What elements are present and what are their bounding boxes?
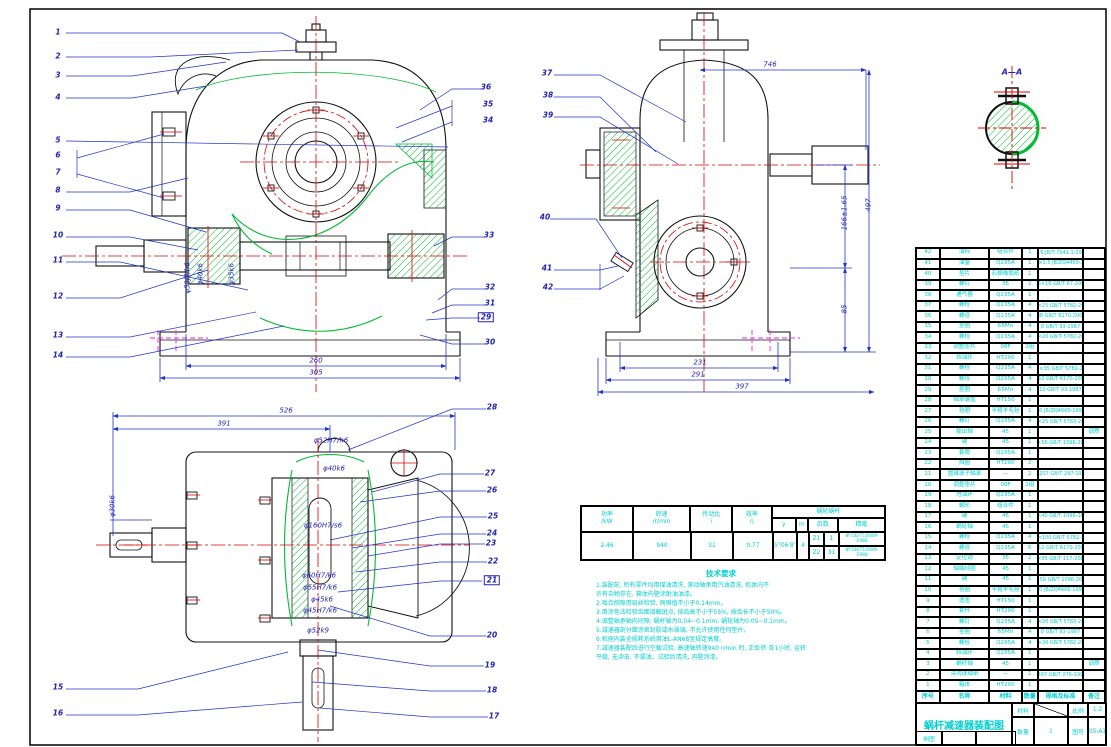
bom-cell: 1 bbox=[916, 680, 940, 691]
bom-cell bbox=[1083, 332, 1105, 343]
bom-cell bbox=[1038, 269, 1084, 280]
param-precision-1: 8f GB/T10089-1988 bbox=[839, 532, 885, 546]
bom-cell: Q235A bbox=[989, 311, 1022, 322]
part-callout-42: 42 bbox=[543, 283, 553, 291]
bom-cell: 1 bbox=[1022, 269, 1038, 280]
part-callout-40: 40 bbox=[540, 213, 550, 221]
bom-cell: 28 bbox=[916, 396, 940, 407]
bom-cell: 4 bbox=[1022, 628, 1038, 639]
bom-cell: 18 bbox=[916, 501, 940, 512]
bom-cell: 45 bbox=[989, 427, 1022, 438]
part-callout-10: 10 bbox=[53, 231, 63, 239]
bom-cell: 08F bbox=[989, 343, 1022, 354]
scale-label: 比例 bbox=[1068, 703, 1088, 717]
bom-cell: 11 bbox=[916, 575, 940, 586]
bom-row: 13定位销3528×35 GB/T 117-2000 bbox=[916, 554, 1105, 565]
bom-cell bbox=[1083, 301, 1105, 312]
bom-cell: 1 bbox=[1022, 649, 1038, 660]
bom-cell: 6 bbox=[1022, 543, 1038, 554]
bom-cell: 材料 bbox=[989, 691, 1022, 703]
bom-cell bbox=[1083, 491, 1105, 502]
bom-cell: 4 bbox=[1022, 385, 1038, 396]
bom-cell: 键 bbox=[940, 512, 989, 523]
bom-cell: 备注 bbox=[1083, 691, 1105, 703]
bom-row: 41油塞Q235A1M16×1.5 JB/ZQ4450-1997 bbox=[916, 259, 1105, 270]
bom-cell: 名称 bbox=[940, 691, 989, 703]
bom-cell: 1 bbox=[1022, 396, 1038, 407]
bom-row: 2深沟球轴承—16207 GB/T 276-1994 bbox=[916, 670, 1105, 681]
bom-row: 10毡圈半粗羊毛毡130 JB/ZQ4606-1997 bbox=[916, 586, 1105, 597]
bom-cell: 4 bbox=[1022, 617, 1038, 628]
bom-cell: HT150 bbox=[989, 596, 1022, 607]
bom-cell: 蜗轮 bbox=[940, 501, 989, 512]
bom-cell bbox=[1083, 617, 1105, 628]
bom-cell: 6 bbox=[916, 628, 940, 639]
part-callout-14: 14 bbox=[53, 351, 63, 359]
bom-row: 9透盖HT1501 bbox=[916, 596, 1105, 607]
param-z2-label: Z2 bbox=[809, 546, 824, 560]
bom-cell bbox=[1083, 417, 1105, 428]
draft-date-cell bbox=[976, 731, 1016, 746]
bom-cell: 垫圈 bbox=[940, 385, 989, 396]
bom-cell: 45 bbox=[989, 564, 1022, 575]
bom-cell: 40 JB/ZQ4606-1997 bbox=[1038, 406, 1084, 417]
part-callout-22: 22 bbox=[488, 557, 498, 565]
bom-cell: — bbox=[989, 469, 1022, 480]
bom-cell: 螺母 bbox=[940, 543, 989, 554]
part-callout-3: 3 bbox=[55, 71, 60, 79]
bom-cell: 45 bbox=[989, 659, 1022, 670]
bom-cell: M12 GB/T 6170-2000 bbox=[1038, 543, 1084, 554]
part-callout-9: 9 bbox=[55, 204, 60, 212]
part-callout-37: 37 bbox=[542, 69, 552, 77]
bom-cell: Q235A bbox=[989, 301, 1022, 312]
draft-label: 制图 bbox=[916, 731, 942, 746]
bom-cell bbox=[1038, 480, 1084, 491]
bom-cell bbox=[1083, 364, 1105, 375]
part-callout-38: 38 bbox=[543, 91, 553, 99]
bom-cell: 垫圈 bbox=[940, 628, 989, 639]
bom-cell: 螺钉 bbox=[940, 617, 989, 628]
bom-row: 1箱体HT2001 bbox=[916, 680, 1105, 691]
bom-cell: 22 bbox=[916, 459, 940, 470]
bom-row: 34螺栓Q235A4M8×20 GB/T 5782-2000 bbox=[916, 332, 1105, 343]
bom-table: 42油标组合件1M16 JB/T 7941.1-199541油塞Q235A1M1… bbox=[915, 247, 1106, 745]
note-line: 2.啮合侧隙用铅丝检验, 侧隙值不小于0.14mm。 bbox=[596, 599, 846, 608]
part-callout-27: 27 bbox=[485, 469, 495, 477]
bom-cell: 4 bbox=[1022, 301, 1038, 312]
note-line: 3.用涂色法检验齿面接触斑点, 按齿高不小于55%, 按齿长不小于50%。 bbox=[596, 608, 846, 617]
bom-cell: 螺栓 bbox=[940, 332, 989, 343]
front-view-centerlines bbox=[62, 16, 470, 392]
bom-row: 20调整垫片08F2组 bbox=[916, 480, 1105, 491]
bom-cell: 2 bbox=[1022, 459, 1038, 470]
bom-row: 23套筒Q235A1 bbox=[916, 448, 1105, 459]
bom-cell: 甩油环 bbox=[940, 491, 989, 502]
bom-row: 29垫圈65Mn410 GB/T 93-1987 bbox=[916, 385, 1105, 396]
bom-cell: 1 bbox=[1022, 522, 1038, 533]
bom-cell: 27 bbox=[916, 406, 940, 417]
bom-cell bbox=[1083, 459, 1105, 470]
bom-cell: 2 bbox=[1022, 280, 1038, 291]
bom-cell bbox=[1083, 543, 1105, 554]
bom-cell bbox=[1038, 501, 1084, 512]
bom-cell: 组合件 bbox=[989, 248, 1022, 259]
bom-cell bbox=[1083, 469, 1105, 480]
param-header-power: 功率/kW bbox=[581, 506, 633, 532]
bom-row: 7螺钉Q235A4M8×20 GB/T 5783-2000 bbox=[916, 617, 1105, 628]
bom-cell bbox=[1083, 343, 1105, 354]
bom-cell: Q235A bbox=[989, 375, 1022, 386]
part-callout-36: 36 bbox=[481, 83, 491, 91]
bom-cell: 透盖 bbox=[940, 596, 989, 607]
bom-cell bbox=[1083, 280, 1105, 291]
bom-cell: 1 bbox=[1022, 564, 1038, 575]
bom-cell: 2 bbox=[916, 670, 940, 681]
bom-cell bbox=[1083, 533, 1105, 544]
bom-row: 24键45112×56 GB/T 1096-2003 bbox=[916, 438, 1105, 449]
part-callout-32: 32 bbox=[485, 283, 495, 291]
bom-cell: 数量 bbox=[1022, 691, 1038, 703]
bom-cell: 6207 GB/T 276-1994 bbox=[1038, 670, 1084, 681]
bom-cell bbox=[1083, 269, 1105, 280]
bom-cell bbox=[1083, 406, 1105, 417]
bom-cell: 调整垫片 bbox=[940, 343, 989, 354]
param-module: 4 bbox=[797, 532, 809, 560]
bom-cell: 序号 bbox=[916, 691, 940, 703]
part-callout-30: 30 bbox=[485, 338, 495, 346]
bom-cell: 65Mn bbox=[989, 628, 1022, 639]
part-callout-39: 39 bbox=[543, 111, 553, 119]
bom-cell: Q235A bbox=[989, 417, 1022, 428]
bom-cell: 半粗羊毛毡 bbox=[989, 586, 1022, 597]
bom-cell: M16×1.5 JB/ZQ4450-1997 bbox=[1038, 259, 1084, 270]
bom-cell: 4 bbox=[916, 649, 940, 660]
bom-cell bbox=[1083, 385, 1105, 396]
part-callout-21: 21 bbox=[484, 575, 500, 585]
technical-notes: 技术要求 1.装配前, 所有零件均用煤油清洗, 滚动轴承用汽油清洗, 机体内不 … bbox=[596, 568, 846, 662]
bom-cell: 1 bbox=[1022, 259, 1038, 270]
bom-row: 40垫片石棉橡胶纸1 bbox=[916, 269, 1105, 280]
bom-cell: 调质 bbox=[1083, 427, 1105, 438]
leader-lines bbox=[66, 33, 686, 717]
bom-cell: 深沟球轴承 bbox=[940, 670, 989, 681]
bom-cell: 33 bbox=[916, 343, 940, 354]
bom-cell: 石棉橡胶纸 bbox=[989, 269, 1022, 280]
bom-row: 33调整垫片08F2组 bbox=[916, 343, 1105, 354]
bom-cell: 41 bbox=[916, 259, 940, 270]
part-callout-25: 25 bbox=[488, 512, 498, 520]
part-callout-35: 35 bbox=[483, 100, 493, 108]
param-eff: 0.77 bbox=[733, 532, 773, 560]
param-header-eff: 效率η bbox=[732, 506, 772, 532]
bom-cell: Q235A bbox=[989, 259, 1022, 270]
bom-cell: Q235A bbox=[989, 448, 1022, 459]
bom-cell bbox=[1083, 680, 1105, 691]
part-callout-28: 28 bbox=[487, 403, 497, 411]
bom-cell: 毡圈 bbox=[940, 586, 989, 597]
bom-cell: 1 bbox=[1022, 512, 1038, 523]
bom-cell: 蜗杆轴 bbox=[940, 659, 989, 670]
bom-row: 26螺钉Q235A4M8×25 GB/T 5783-2000 bbox=[916, 417, 1105, 428]
bom-cell: 螺钉 bbox=[940, 417, 989, 428]
bom-cell bbox=[1083, 564, 1105, 575]
bom-row: 17键45110×40 GB/T 1096-2003 bbox=[916, 512, 1105, 523]
bom-cell: — bbox=[989, 670, 1022, 681]
bom-cell: 35 bbox=[916, 322, 940, 333]
bom-cell: Q235A bbox=[989, 290, 1022, 301]
bom-row: 25输出轴451调质 bbox=[916, 427, 1105, 438]
note-line: 7.减速器装配后进行空载试验, 高速轴转速940 r/min 时, 正反转 各1… bbox=[596, 644, 846, 653]
bom-cell: 8 GB/T 93-1987 bbox=[1038, 628, 1084, 639]
note-line: 5.减速器剖分面涂密封胶或水玻璃, 不允许使用任何垫片。 bbox=[596, 626, 846, 635]
bom-row: 4挡油环Q235A1 bbox=[916, 649, 1105, 660]
bom-cell: 4 bbox=[1022, 417, 1038, 428]
bom-cell: 键 bbox=[940, 575, 989, 586]
bom-cell: 调整垫片 bbox=[940, 480, 989, 491]
bom-cell: 垫圈 bbox=[940, 322, 989, 333]
bom-cell: 8 GB/T 93-1987 bbox=[1038, 322, 1084, 333]
bom-cell bbox=[1038, 353, 1084, 364]
drawing-canvas: 1234567891011121314151636353433323129303… bbox=[0, 0, 1111, 747]
bom-cell bbox=[1038, 343, 1084, 354]
bom-cell: 半粗羊毛毡 bbox=[989, 406, 1022, 417]
bom-cell bbox=[1083, 322, 1105, 333]
bom-cell bbox=[1083, 448, 1105, 459]
bom-cell: 30 bbox=[916, 375, 940, 386]
bom-cell: 37 bbox=[916, 301, 940, 312]
bom-cell: 箱体 bbox=[940, 680, 989, 691]
note-line: 许有杂物存在, 箱体内壁涂耐油油漆。 bbox=[596, 590, 846, 599]
param-header-gamma: γ bbox=[772, 518, 796, 532]
bom-cell bbox=[1083, 259, 1105, 270]
bom-row: 21圆锥滚子轴承—230207 GB/T 297-1994 bbox=[916, 469, 1105, 480]
part-callout-6: 6 bbox=[55, 151, 60, 159]
bom-cell: 9 bbox=[916, 596, 940, 607]
bom-cell: 1 bbox=[1022, 353, 1038, 364]
bom-cell: 输出轴 bbox=[940, 427, 989, 438]
bom-row: 35垫圈65Mn48 GB/T 93-1987 bbox=[916, 322, 1105, 333]
bom-row: 14螺母Q235A6M12 GB/T 6170-2000 bbox=[916, 543, 1105, 554]
material-label: 材料 bbox=[1012, 703, 1034, 717]
note-line: 6.机座内装全损耗系统用油L-AN68至规定高度。 bbox=[596, 635, 846, 644]
bom-cell: 10 bbox=[916, 586, 940, 597]
bom-cell: 蜗轮轴 bbox=[940, 522, 989, 533]
part-callout-1: 1 bbox=[55, 28, 60, 36]
part-callout-26: 26 bbox=[487, 486, 497, 494]
part-callout-20: 20 bbox=[487, 631, 497, 639]
bom-cell: 45 bbox=[989, 512, 1022, 523]
bom-cell: 4 bbox=[1022, 375, 1038, 386]
param-z1: 1 bbox=[824, 532, 839, 546]
bom-cell: HT200 bbox=[989, 353, 1022, 364]
bom-cell: 4 bbox=[1022, 322, 1038, 333]
bom-cell: 10×40 GB/T 1096-2003 bbox=[1038, 512, 1084, 523]
bom-cell: 螺栓 bbox=[940, 638, 989, 649]
bom-cell: 1 bbox=[1022, 248, 1038, 259]
bom-cell: 8×50 GB/T 1096-2003 bbox=[1038, 575, 1084, 586]
part-callout-18: 18 bbox=[487, 686, 497, 694]
bom-cell bbox=[1083, 522, 1105, 533]
bom-cell: 08F bbox=[989, 480, 1022, 491]
bom-cell: 40 bbox=[916, 269, 940, 280]
bom-cell: 螺栓 bbox=[940, 364, 989, 375]
side-view-phantom bbox=[742, 330, 800, 352]
bom-cell: 39 bbox=[916, 280, 940, 291]
bom-cell: 1 bbox=[1022, 659, 1038, 670]
bom-cell: 35 bbox=[989, 554, 1022, 565]
bom-row: 28轴承端盖HT1501 bbox=[916, 396, 1105, 407]
bom-cell: 调质 bbox=[1083, 659, 1105, 670]
bom-cell: 2组 bbox=[1022, 343, 1038, 354]
detail-a-a bbox=[978, 66, 1046, 190]
bom-row: 42油标组合件1M16 JB/T 7941.1-1995 bbox=[916, 248, 1105, 259]
bom-cell: 8×35 GB/T 117-2000 bbox=[1038, 554, 1084, 565]
bom-row: 36螺母Q235A4M8 GB/T 6170-2000 bbox=[916, 311, 1105, 322]
bom-row: 30螺母Q235A4M10 GB/T 6170-2000 bbox=[916, 375, 1105, 386]
bom-cell: 34 bbox=[916, 332, 940, 343]
part-callout-8: 8 bbox=[55, 186, 60, 194]
param-header-teeth: 齿数 bbox=[808, 518, 838, 532]
part-callout-2: 2 bbox=[55, 52, 60, 60]
bom-cell: 1 bbox=[1022, 427, 1038, 438]
bom-cell: 组合件 bbox=[989, 501, 1022, 512]
bom-row: 6垫圈65Mn48 GB/T 93-1987 bbox=[916, 628, 1105, 639]
material-value bbox=[1034, 703, 1068, 717]
bom-cell: M16 JB/T 7941.1-1995 bbox=[1038, 248, 1084, 259]
part-callout-29: 29 bbox=[478, 312, 494, 322]
bom-row: 5螺栓Q235A4M8×30 GB/T 5782-2000 bbox=[916, 638, 1105, 649]
bom-cell: 螺栓 bbox=[940, 533, 989, 544]
param-ratio: 31 bbox=[691, 532, 733, 560]
part-callout-24: 24 bbox=[487, 529, 497, 537]
param-header-pair: 蜗轮蜗杆 bbox=[772, 506, 885, 518]
bom-row: 39螺钉352M6×16 GB/T 67-2008 bbox=[916, 280, 1105, 291]
bom-cell: 1 bbox=[1022, 575, 1038, 586]
bom-cell: 轴承端盖 bbox=[940, 396, 989, 407]
side-view bbox=[586, 13, 868, 356]
bom-cell bbox=[1038, 459, 1084, 470]
bom-cell: 1 bbox=[1022, 607, 1038, 618]
note-line: 1.装配前, 所有零件均用煤油清洗, 滚动轴承用汽油清洗, 机体内不 bbox=[596, 581, 846, 590]
bom-cell bbox=[1083, 480, 1105, 491]
bom-cell: 31 bbox=[916, 364, 940, 375]
bom-cell: M8×25 GB/T 5782-2000 bbox=[1038, 301, 1084, 312]
bom-cell: 19 bbox=[916, 491, 940, 502]
bom-cell: HT200 bbox=[989, 680, 1022, 691]
bom-row: 37螺栓Q235A4M8×25 GB/T 5782-2000 bbox=[916, 301, 1105, 312]
bom-cell bbox=[1038, 607, 1084, 618]
bom-cell: 30207 GB/T 297-1994 bbox=[1038, 469, 1084, 480]
bom-cell: 45 bbox=[989, 438, 1022, 449]
bom-cell bbox=[1083, 596, 1105, 607]
bom-cell: 45 bbox=[989, 522, 1022, 533]
bom-row: 12轴端挡圈451 bbox=[916, 564, 1105, 575]
bom-cell: 12×56 GB/T 1096-2003 bbox=[1038, 438, 1084, 449]
bom-row: 16蜗轮轴451 bbox=[916, 522, 1105, 533]
param-z1-label: Z1 bbox=[809, 532, 824, 546]
bom-row: 18蜗轮组合件1 bbox=[916, 501, 1105, 512]
bom-cell: 26 bbox=[916, 417, 940, 428]
param-header-speed: 转速/r/min bbox=[633, 506, 691, 532]
bom-cell: 30 JB/ZQ4606-1997 bbox=[1038, 586, 1084, 597]
bom-cell: M8×20 GB/T 5783-2000 bbox=[1038, 617, 1084, 628]
bom-cell: Q235A bbox=[989, 491, 1022, 502]
bom-cell: 4 bbox=[1022, 364, 1038, 375]
bom-cell: 42 bbox=[916, 248, 940, 259]
bom-cell: M8 GB/T 6170-2000 bbox=[1038, 311, 1084, 322]
note-line: 4.调整轴承轴向间隙: 蜗杆轴为0.04~0.1mm, 蜗轮轴为0.05~0.1… bbox=[596, 617, 846, 626]
bom-cell: 4 bbox=[1022, 533, 1038, 544]
bom-cell: M10 GB/T 6170-2000 bbox=[1038, 375, 1084, 386]
bom-cell: 1 bbox=[1022, 406, 1038, 417]
bom-cell bbox=[1083, 438, 1105, 449]
bom-cell bbox=[1038, 491, 1084, 502]
bom-cell bbox=[1083, 670, 1105, 681]
param-header-ratio: 传动比i bbox=[690, 506, 732, 532]
bom-cell bbox=[1038, 522, 1084, 533]
part-callout-16: 16 bbox=[53, 709, 63, 717]
bom-cell: 5 bbox=[916, 638, 940, 649]
bom-cell: 1 bbox=[1022, 596, 1038, 607]
bom-cell: 键 bbox=[940, 438, 989, 449]
bom-cell bbox=[1038, 564, 1084, 575]
bom-cell: M10×35 GB/T 5782-2000 bbox=[1038, 364, 1084, 375]
bom-cell bbox=[1083, 628, 1105, 639]
bom-cell: 3 bbox=[916, 659, 940, 670]
part-callout-17: 17 bbox=[489, 712, 499, 720]
part-callout-15: 15 bbox=[53, 683, 63, 691]
bom-cell bbox=[1083, 512, 1105, 523]
bom-row: 27毡圈半粗羊毛毡140 JB/ZQ4606-1997 bbox=[916, 406, 1105, 417]
bom-cell: 1 bbox=[1022, 670, 1038, 681]
bom-cell: 38 bbox=[916, 290, 940, 301]
bom-cell: HT200 bbox=[989, 459, 1022, 470]
bom-cell bbox=[1038, 659, 1084, 670]
bom-cell: HT200 bbox=[989, 607, 1022, 618]
bom-cell: 挡圈 bbox=[940, 459, 989, 470]
bom-cell: 32 bbox=[916, 353, 940, 364]
bom-cell: 14 bbox=[916, 543, 940, 554]
bom-cell: 20 bbox=[916, 480, 940, 491]
bom-cell: 油标 bbox=[940, 248, 989, 259]
bom-cell: 25 bbox=[916, 427, 940, 438]
bom-cell: 1 bbox=[1022, 438, 1038, 449]
bom-cell: 定位销 bbox=[940, 554, 989, 565]
param-precision-2: 8f GB/T10089-1988 bbox=[839, 546, 885, 560]
bom-cell: 8 bbox=[916, 607, 940, 618]
bom-cell bbox=[1083, 607, 1105, 618]
plan-view-centerlines bbox=[96, 438, 470, 742]
part-callout-31: 31 bbox=[485, 299, 495, 307]
bom-row: 31螺栓Q235A4M10×35 GB/T 5782-2000 bbox=[916, 364, 1105, 375]
plan-view-dims bbox=[110, 412, 455, 536]
bom-cell: 通气器 bbox=[940, 290, 989, 301]
bom-cell bbox=[1038, 427, 1084, 438]
bom-cell: 4 bbox=[1022, 638, 1038, 649]
bom-row: 38通气器Q235A1 bbox=[916, 290, 1105, 301]
bom-cell bbox=[1083, 353, 1105, 364]
bom-cell bbox=[1038, 448, 1084, 459]
part-callout-7: 7 bbox=[55, 168, 60, 176]
part-callout-12: 12 bbox=[53, 292, 63, 300]
bom-cell bbox=[1038, 596, 1084, 607]
bom-cell: 29 bbox=[916, 385, 940, 396]
bom-cell: M12×100 GB/T 5782-2000 bbox=[1038, 533, 1084, 544]
bom-cell: Q235A bbox=[989, 332, 1022, 343]
bom-cell: 1 bbox=[1022, 448, 1038, 459]
bom-cell: 24 bbox=[916, 438, 940, 449]
